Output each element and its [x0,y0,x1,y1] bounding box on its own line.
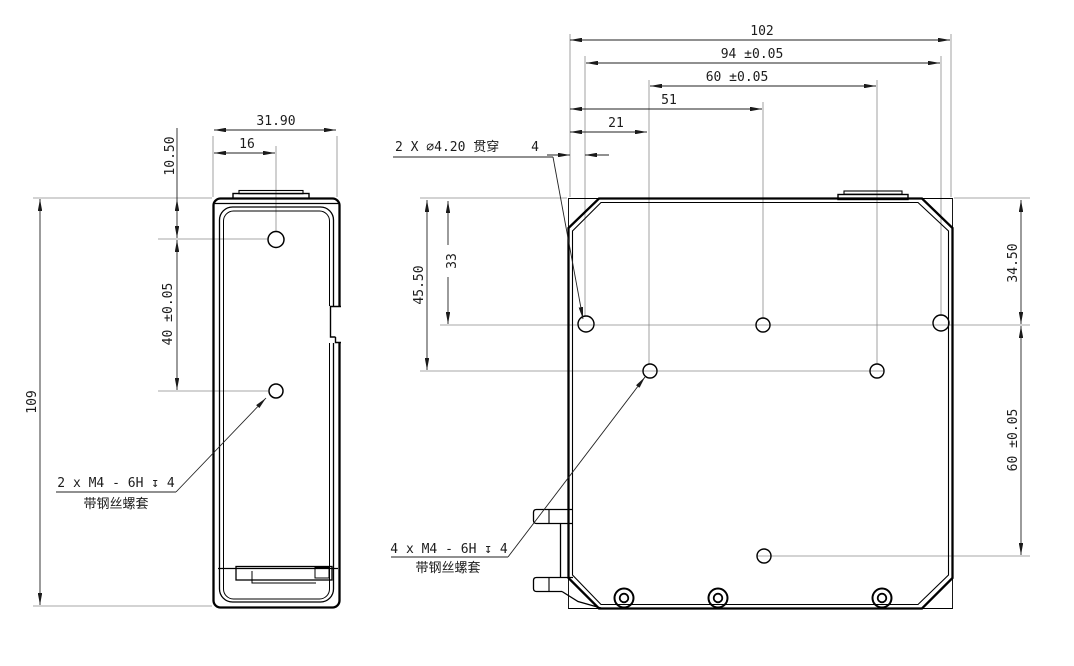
side-thread-note-line2: 带钢丝螺套 [83,496,148,512]
front-view-top-tab-step [844,191,902,194]
dim-text-40: 40 ±0.05 [161,283,176,346]
extension-lines [33,34,1030,606]
dim-text-60v: 60 ±0.05 [1006,409,1021,472]
din-clip-upper-pin [534,510,574,524]
din-rail-clip [534,510,602,609]
dim-text-21: 21 [608,116,624,131]
side-view-hole-top [268,232,284,248]
dim-text-10-50: 10.50 [163,136,178,175]
drawing-canvas: 31.90 16 10.50 40 ±0.05 109 102 94 ±0.05… [0,0,1074,666]
dim-text-51: 51 [661,93,677,108]
dim-text-33: 33 [445,253,460,269]
front-view-corner-ticks [569,199,953,609]
dim-text-60h: 60 ±0.05 [706,70,769,85]
side-thread-note-leader [176,398,266,492]
din-clip-lower-pin [534,578,574,592]
through-hole-right [933,315,949,331]
leader-notes: 2 x M4 - 6H ↧ 4 带钢丝螺套 2 X ⌀4.20 贯穿 4 x M… [56,139,645,576]
screw-inner [878,594,887,603]
dim-text-4: 4 [531,140,539,155]
side-view-outline [214,199,340,608]
dim-text-16: 16 [239,137,255,152]
side-thread-note-line1: 2 x M4 - 6H ↧ 4 [57,476,175,491]
front-thread-note-line1: 4 x M4 - 6H ↧ 4 [390,542,508,557]
front-view-outline [569,199,953,609]
dimensions: 31.90 16 10.50 40 ±0.05 109 102 94 ±0.05… [25,24,1021,605]
dim-text-34-50: 34.50 [1006,243,1021,282]
engineering-drawing: 31.90 16 10.50 40 ±0.05 109 102 94 ±0.05… [0,0,1074,666]
side-view-hole-bottom [269,384,283,398]
side-view-connector-inner [252,571,316,583]
side-view-inner-wall-1 [220,207,334,602]
front-view [534,191,953,609]
side-view-top-tab-step [239,191,303,194]
front-view-inner-wall [573,203,949,605]
dim-text-102: 102 [750,24,773,39]
screw-inner [620,594,629,603]
dim-text-45-50: 45.50 [412,265,427,304]
side-view [214,191,343,608]
screw-inner [714,594,723,603]
through-hole-left [578,316,594,332]
dim-text-109: 109 [25,390,40,413]
dim-text-31-90: 31.90 [256,114,295,129]
front-thread-note-line2: 带钢丝螺套 [415,560,480,576]
front-thread-note-leader [508,377,645,557]
side-view-inner-wall-2 [224,211,330,599]
front-hole-note: 2 X ⌀4.20 贯穿 [395,139,499,155]
dim-text-94: 94 ±0.05 [721,47,784,62]
